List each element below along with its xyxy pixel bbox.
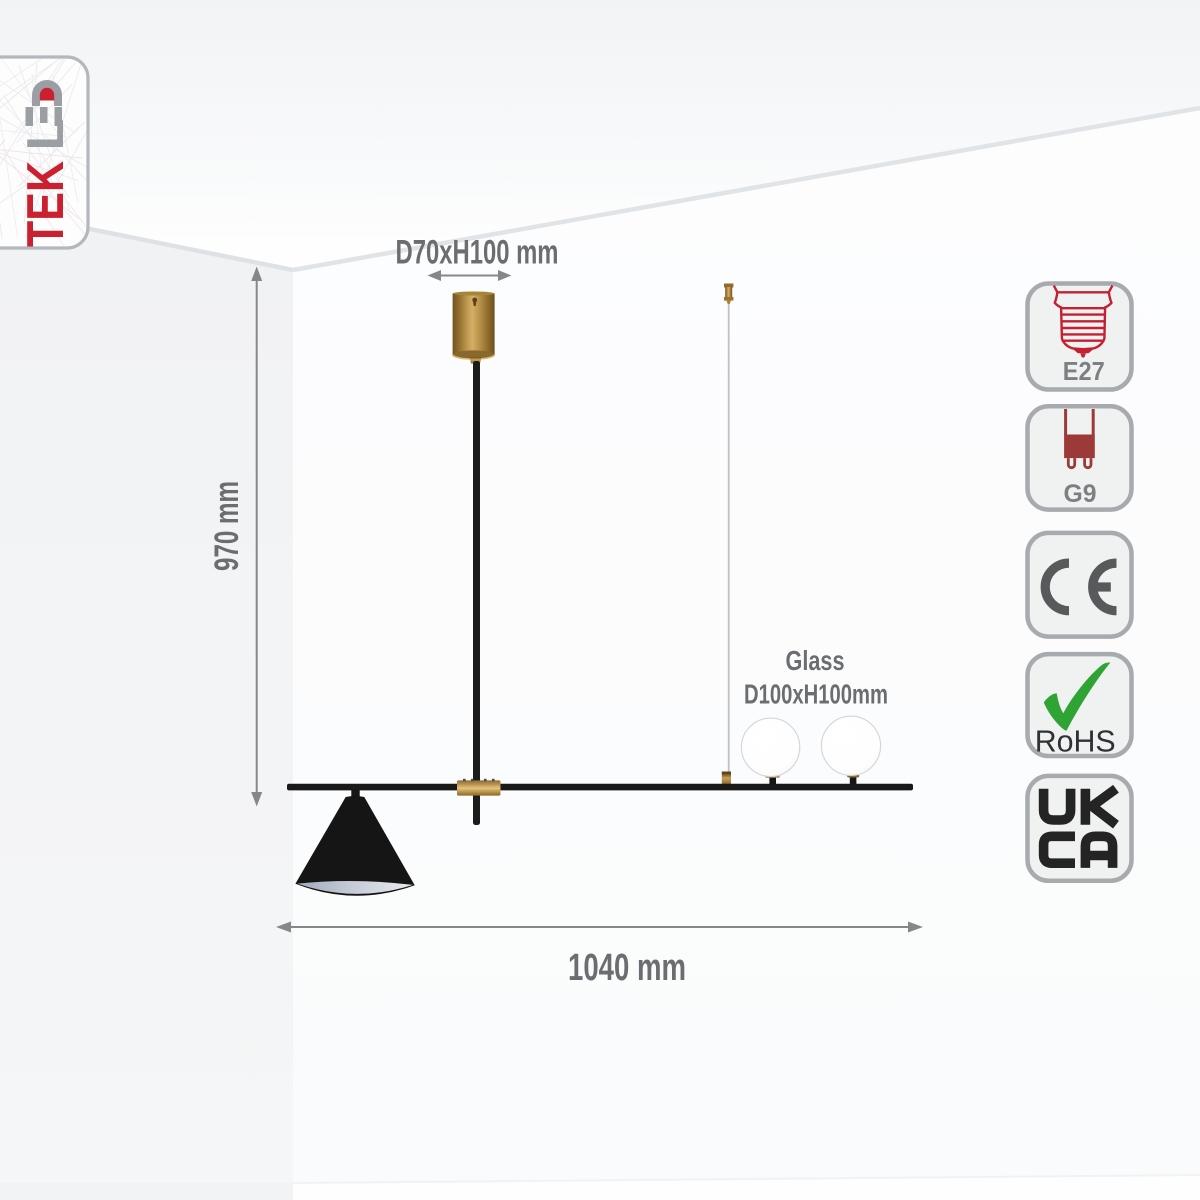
svg-text:1040 mm: 1040 mm bbox=[568, 947, 686, 989]
svg-text:TEK: TEK bbox=[17, 161, 75, 247]
svg-text:D100xH100mm: D100xH100mm bbox=[744, 679, 888, 710]
svg-text:970 mm: 970 mm bbox=[208, 481, 246, 571]
svg-text:Glass: Glass bbox=[786, 645, 845, 676]
svg-text:RoHS: RoHS bbox=[1035, 724, 1116, 759]
svg-text:E27: E27 bbox=[1063, 356, 1105, 386]
svg-text:D70xH100 mm: D70xH100 mm bbox=[396, 234, 559, 272]
svg-text:G9: G9 bbox=[1064, 480, 1097, 508]
